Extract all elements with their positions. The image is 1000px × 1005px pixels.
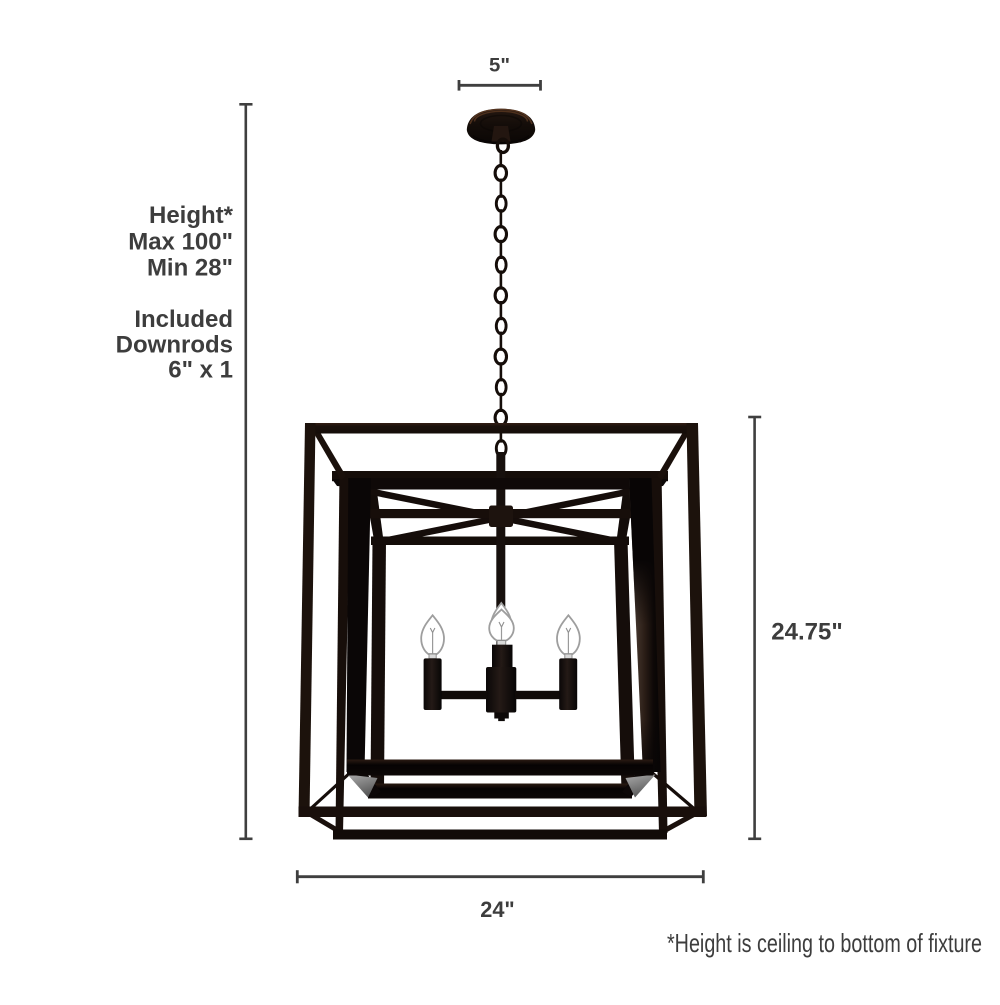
svg-text:24.75": 24.75" — [771, 618, 842, 645]
svg-text:*Height is ceiling to bottom o: *Height is ceiling to bottom of fixture — [667, 928, 982, 958]
svg-text:6" x 1: 6" x 1 — [168, 356, 233, 383]
svg-text:Height*: Height* — [149, 202, 234, 229]
svg-text:Included: Included — [134, 306, 233, 333]
svg-text:Max 100": Max 100" — [128, 228, 233, 255]
svg-text:Downrods: Downrods — [116, 331, 233, 358]
svg-text:24": 24" — [480, 897, 515, 922]
svg-text:Min 28": Min 28" — [147, 255, 233, 282]
svg-text:5": 5" — [489, 56, 510, 77]
